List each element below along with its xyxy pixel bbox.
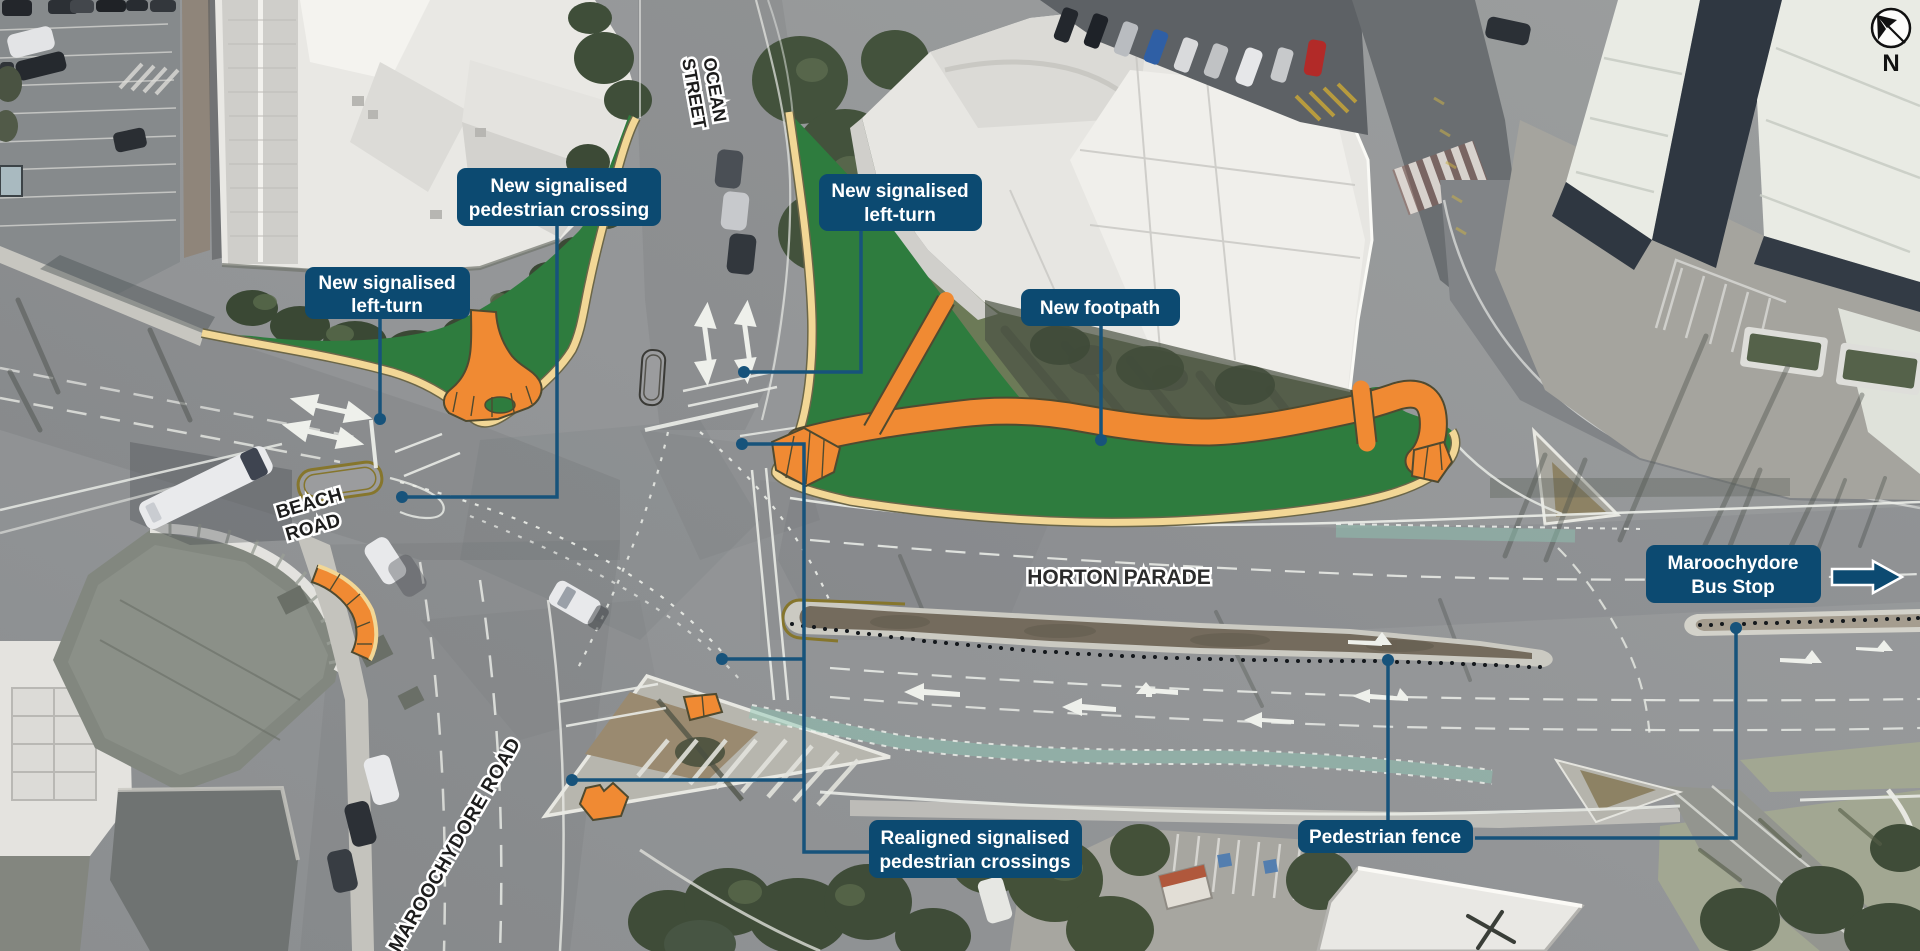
svg-text:pedestrian crossing: pedestrian crossing xyxy=(469,200,650,221)
svg-text:left-turn: left-turn xyxy=(864,205,936,226)
svg-text:pedestrian crossings: pedestrian crossings xyxy=(879,852,1070,873)
svg-text:HORTON PARADE: HORTON PARADE xyxy=(1027,566,1211,589)
svg-text:Realigned signalised: Realigned signalised xyxy=(881,828,1070,849)
svg-text:Bus Stop: Bus Stop xyxy=(1691,577,1774,598)
svg-text:Pedestrian fence: Pedestrian fence xyxy=(1309,827,1461,848)
svg-text:New signalised: New signalised xyxy=(831,181,968,202)
svg-text:New signalised: New signalised xyxy=(490,176,627,197)
svg-text:N: N xyxy=(1882,50,1899,77)
svg-text:New signalised: New signalised xyxy=(318,273,455,294)
svg-text:New footpath: New footpath xyxy=(1040,298,1160,319)
svg-text:left-turn: left-turn xyxy=(351,296,423,317)
svg-text:Maroochydore: Maroochydore xyxy=(1668,553,1799,574)
